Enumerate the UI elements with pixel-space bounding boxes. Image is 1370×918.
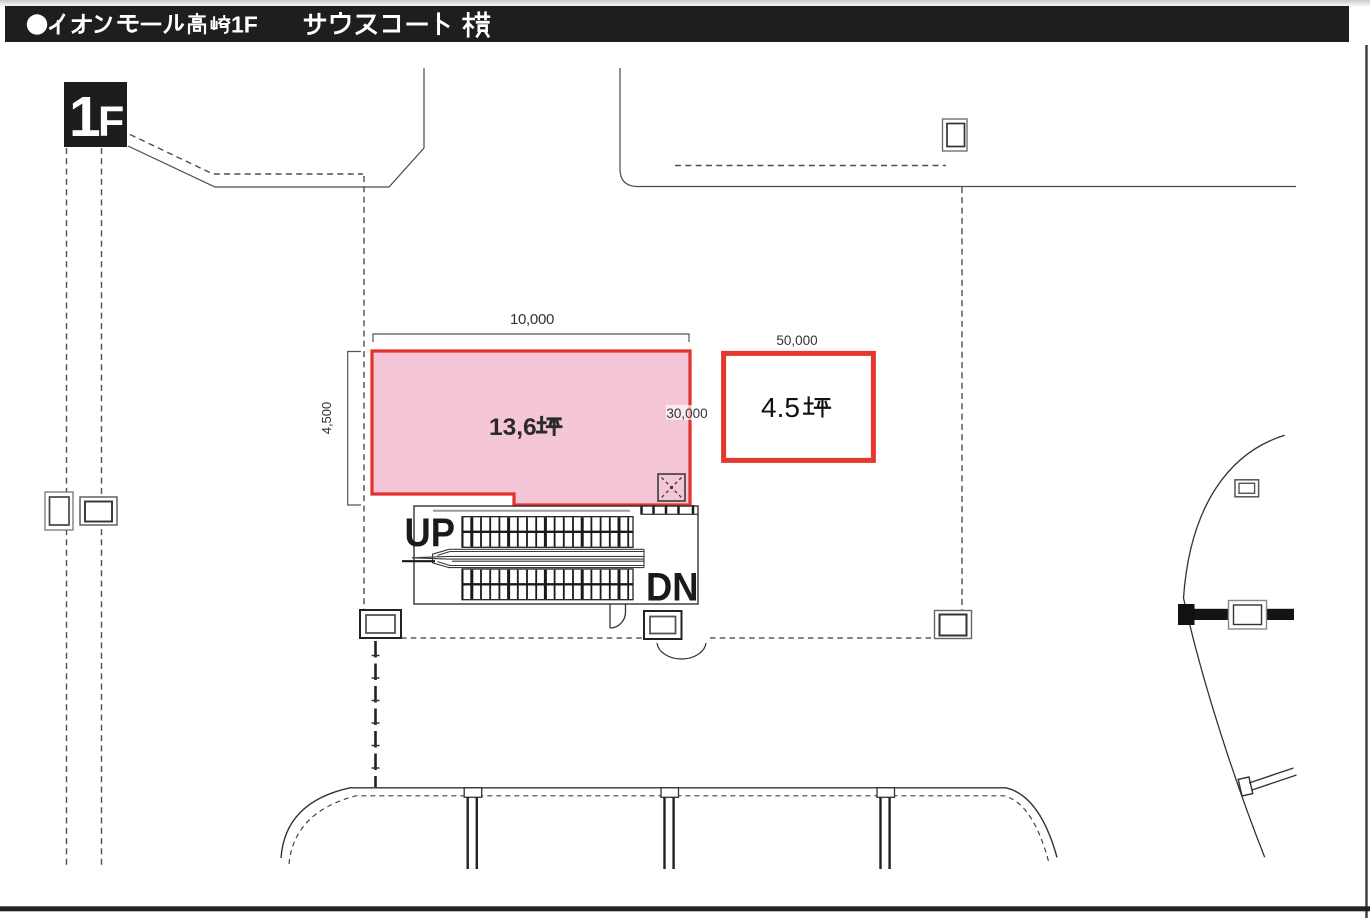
svg-text:4.5: 4.5 bbox=[761, 392, 800, 423]
svg-text:UP: UP bbox=[404, 512, 454, 556]
svg-text:1: 1 bbox=[69, 85, 101, 149]
svg-text:F: F bbox=[98, 98, 124, 146]
svg-text:50,000: 50,000 bbox=[776, 333, 817, 348]
svg-text:4,500: 4,500 bbox=[319, 402, 334, 435]
svg-text:1F: 1F bbox=[231, 12, 258, 38]
svg-text:10,000: 10,000 bbox=[510, 311, 554, 328]
svg-text:13,6: 13,6 bbox=[489, 414, 537, 441]
svg-text:DN: DN bbox=[646, 566, 698, 610]
svg-text:30,000: 30,000 bbox=[666, 406, 707, 421]
